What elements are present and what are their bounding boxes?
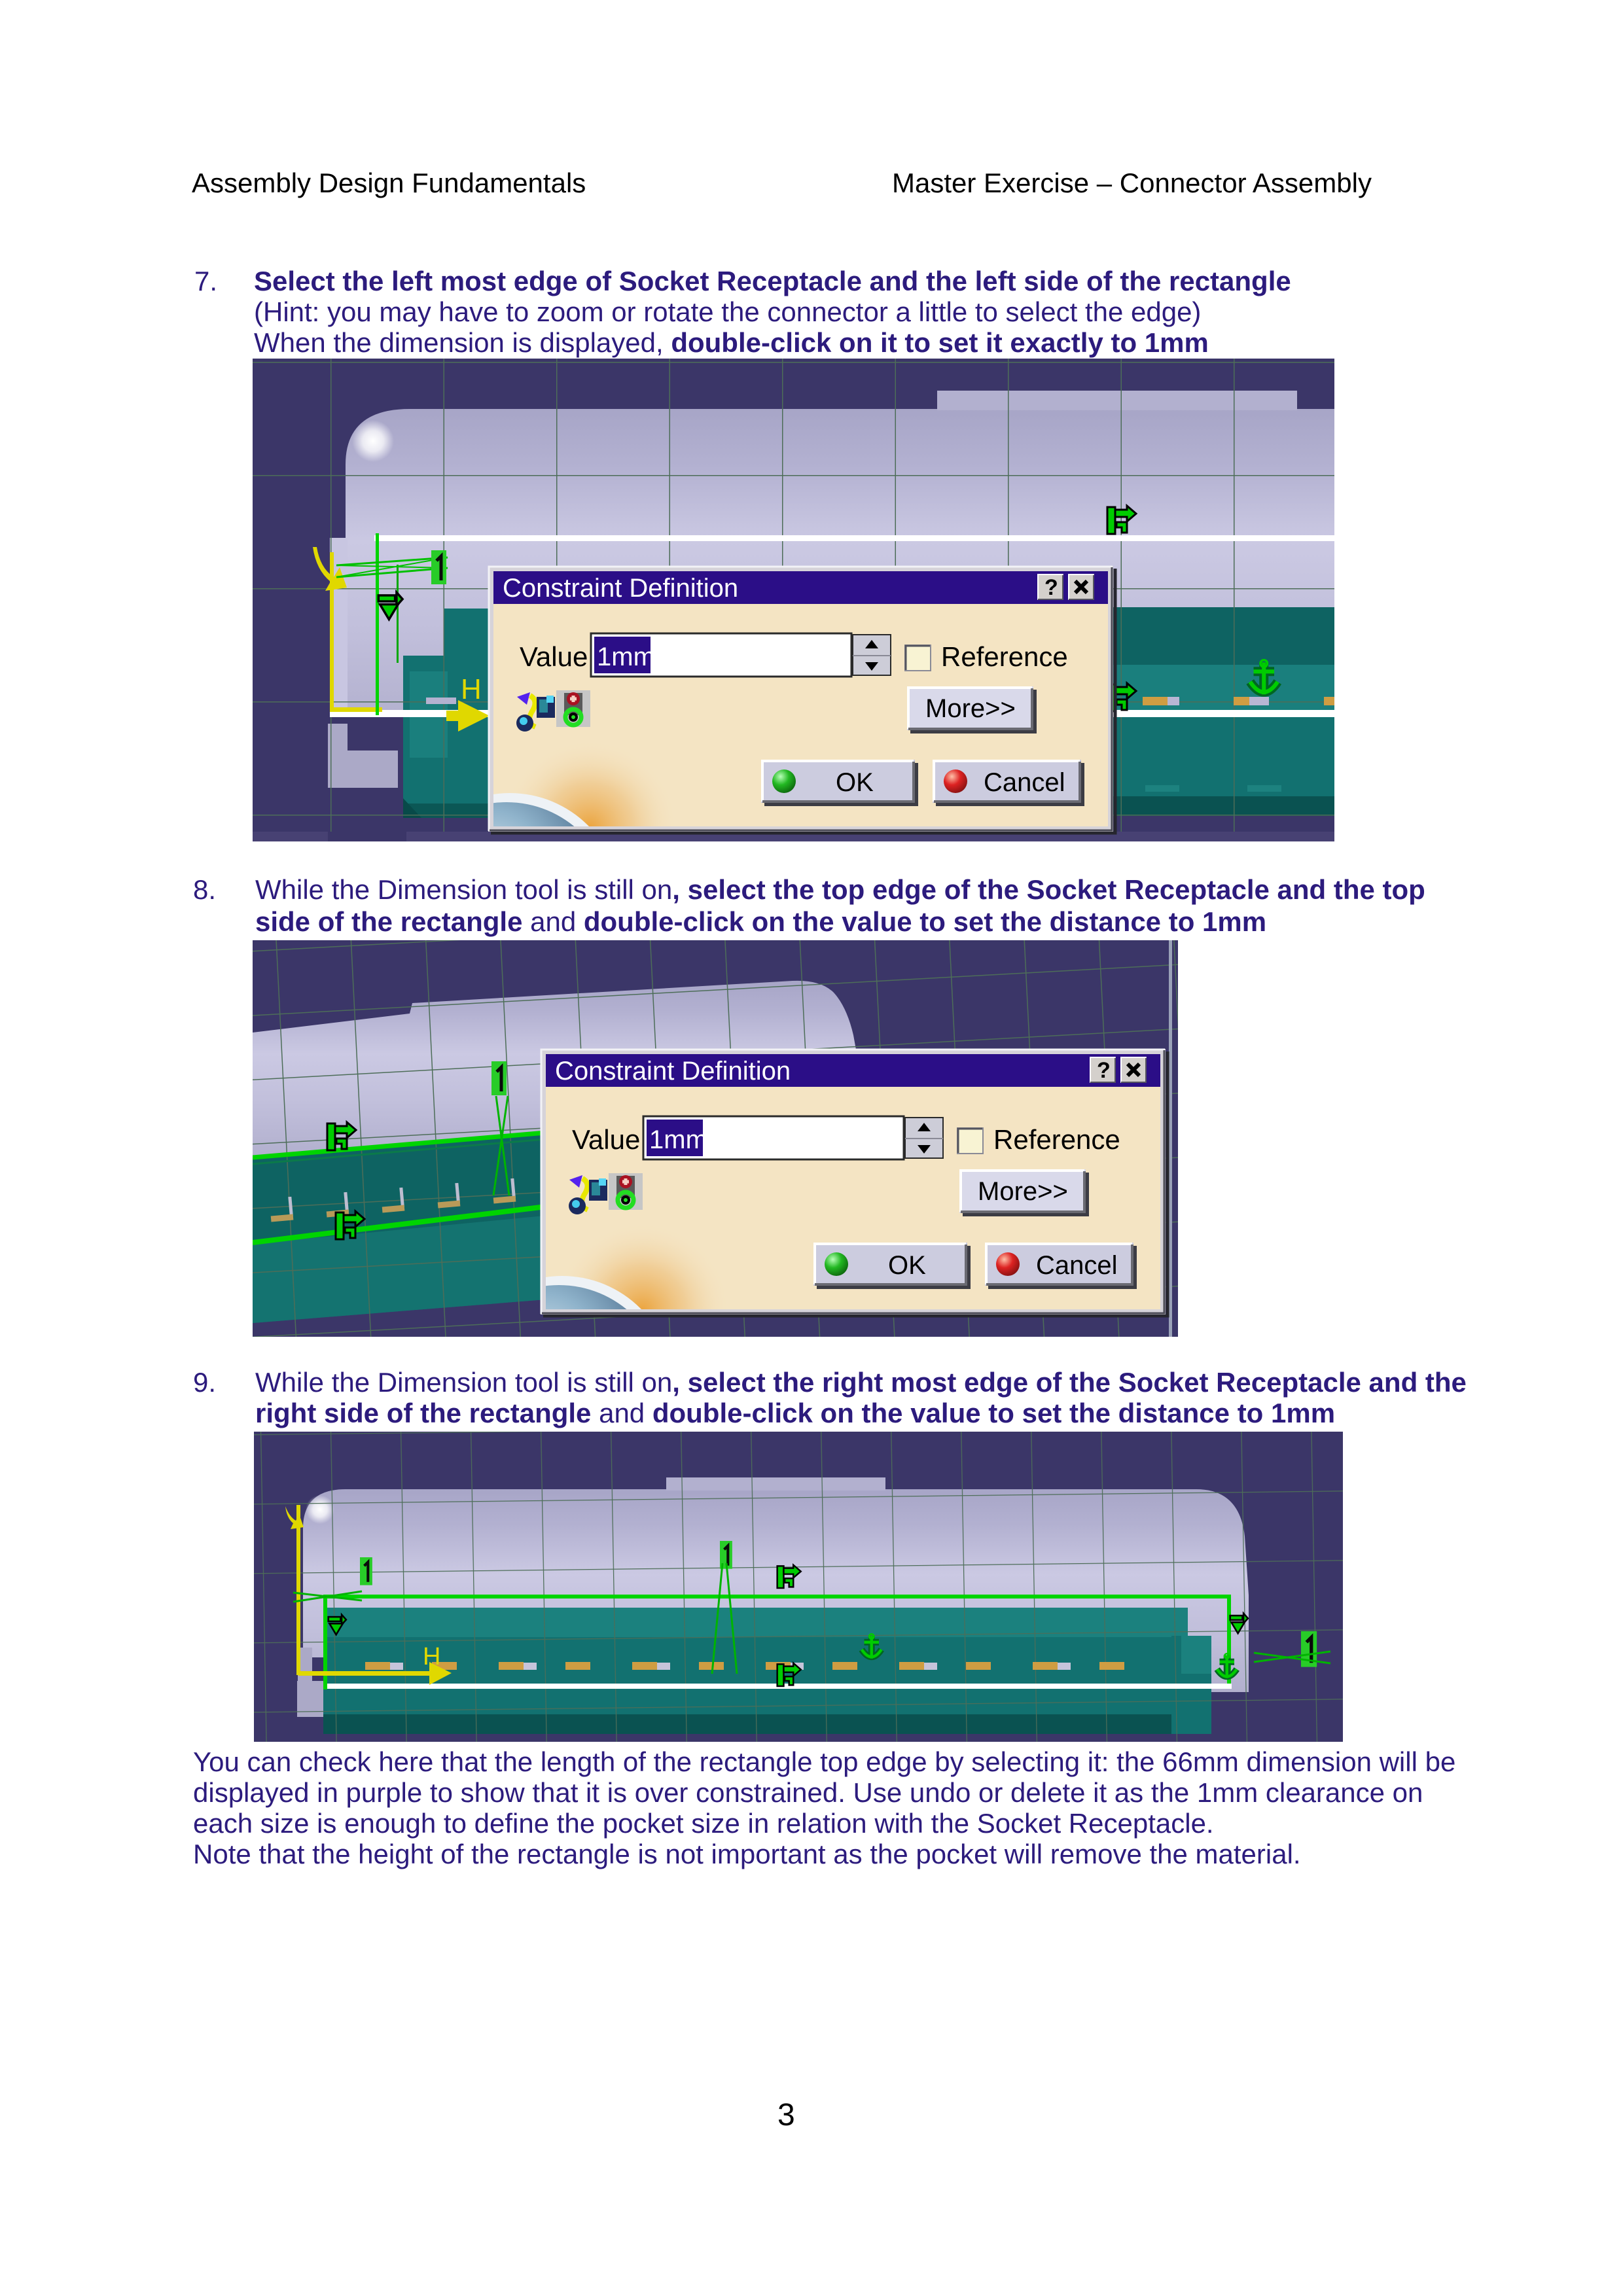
- svg-text:H: H: [423, 1643, 440, 1670]
- svg-text:H: H: [461, 673, 482, 705]
